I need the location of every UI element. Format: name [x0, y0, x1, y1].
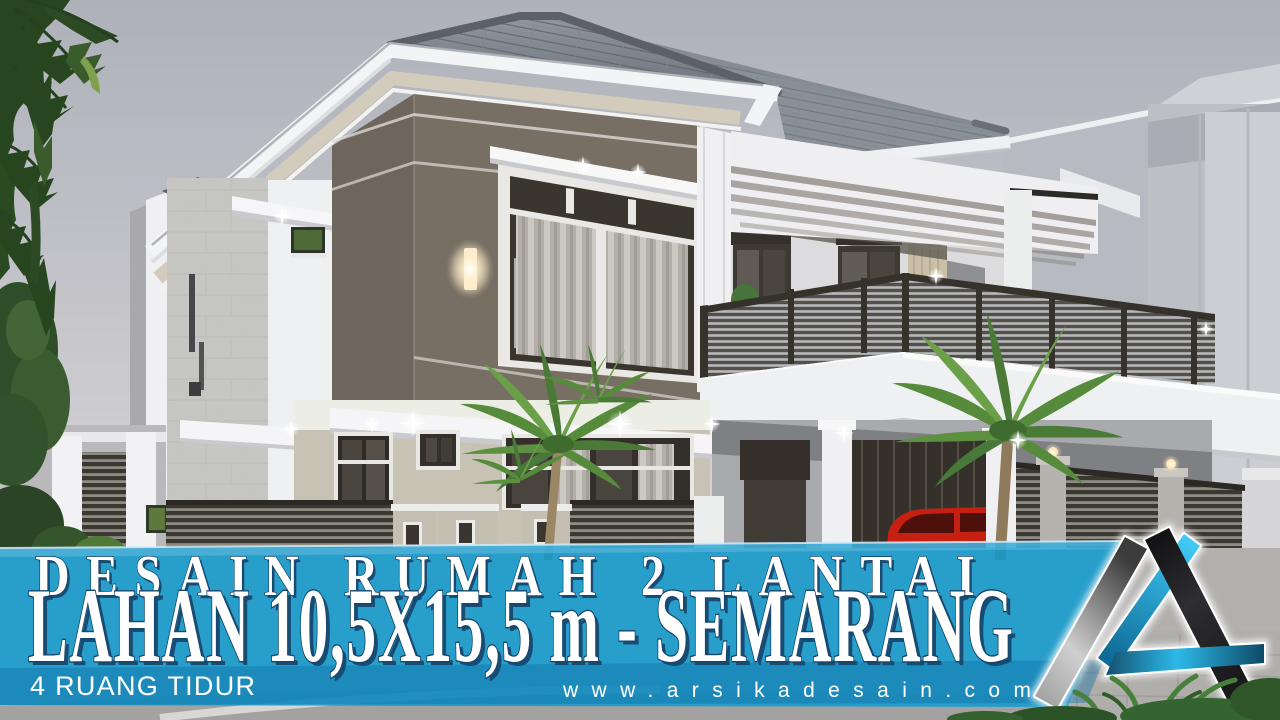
- svg-text:4 RUANG TIDUR: 4 RUANG TIDUR: [30, 671, 255, 701]
- svg-text:LAHAN 10,5X15,5 m - SEMARANG: LAHAN 10,5X15,5 m - SEMARANG: [28, 566, 1013, 684]
